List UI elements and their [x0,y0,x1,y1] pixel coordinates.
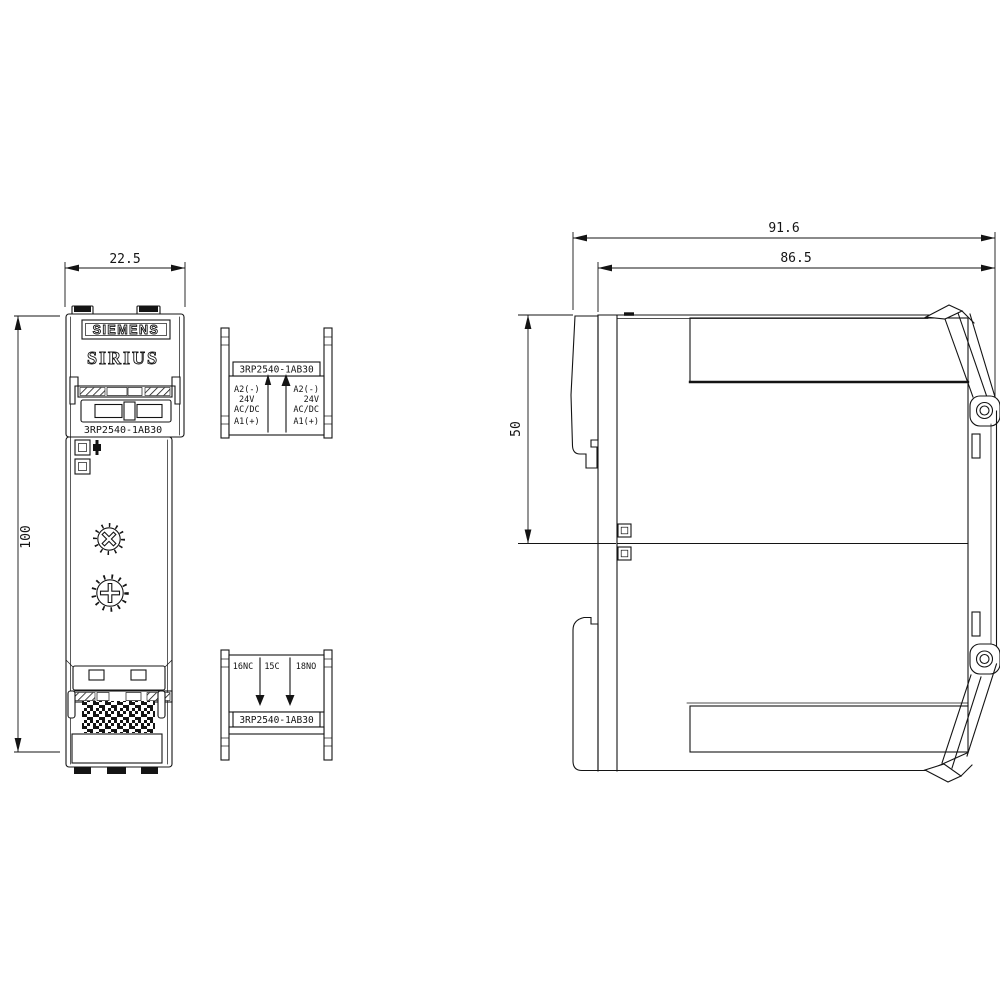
top-clip-slot [972,434,980,458]
bottom-block-terminal-labels: 16NC 15C 18NO [233,662,316,672]
svg-text:A2(-): A2(-) [234,385,260,395]
svg-text:AC/DC: AC/DC [293,405,319,415]
svg-text:A1(+): A1(+) [293,417,319,427]
right-latch-pin [158,691,165,718]
top-block-code: 3RP2540-1AB30 [239,365,314,376]
datamatrix-code [82,701,155,733]
bottom-din-feet [74,767,158,774]
dimension-label-front-height: 100 [19,525,34,548]
dimension-label-front-width: 22.5 [109,252,140,267]
dimension-label-depth-total: 91.6 [768,221,799,236]
svg-text:24V: 24V [304,395,319,405]
top-pivot-screw [977,403,993,419]
svg-text:18NO: 18NO [296,662,316,672]
front-product-code: 3RP2540-1AB30 [84,425,162,436]
top-block-right-labels: A2(-) 24V AC/DC A1(+) [293,385,319,427]
svg-text:16NC: 16NC [233,662,253,672]
brand-text: SIEMENS [93,323,160,337]
sirius-logo: SIRIUS [87,348,159,368]
bottom-pivot-screw [977,651,993,667]
dimensional-drawing: 22.5 100 SIEMENS [0,0,1000,1000]
dimension-label-upper-depth: 50 [509,421,524,437]
svg-text:AC/DC: AC/DC [234,405,260,415]
svg-text:A1(+): A1(+) [234,417,260,427]
svg-text:24V: 24V [239,395,254,405]
right-pin [324,328,332,438]
bottom-block-code: 3RP2540-1AB30 [239,715,314,726]
top-block-left-labels: A2(-) 24V AC/DC A1(+) [234,385,260,427]
din-bottom-foot [573,618,598,771]
top-edge-mark [624,312,634,316]
left-pin [221,650,229,760]
svg-text:15C: 15C [264,662,279,672]
right-pin [324,650,332,760]
siemens-logo: SIEMENS [82,320,170,339]
left-latch-pin [68,691,75,718]
svg-text:A2(-): A2(-) [293,385,319,395]
bottom-clip-slot [972,612,980,636]
left-pin [221,328,229,438]
dimension-label-depth-body: 86.5 [780,251,811,266]
